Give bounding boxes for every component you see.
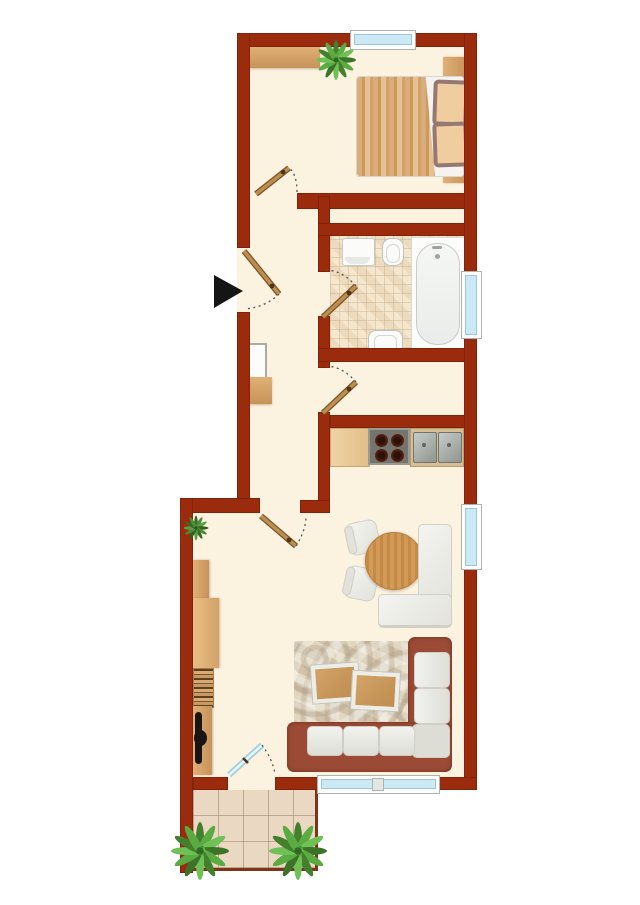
sofa-cushion: [343, 726, 379, 756]
window-mullion: [372, 778, 384, 791]
floor-plan: [0, 0, 640, 905]
bedroom-window: [350, 30, 416, 50]
double-bed: [356, 76, 464, 177]
right-wall-lower: [464, 566, 477, 790]
sink-faucet: [422, 443, 426, 447]
balcony-railing-bottom: [193, 868, 318, 871]
sofa-cushion: [379, 726, 415, 756]
sofa-corner-cushion: [412, 724, 450, 758]
right-wall-upper: [464, 33, 477, 273]
burner: [375, 434, 388, 447]
bathroom-window-glass: [465, 275, 477, 335]
left-wall-lower: [180, 498, 193, 873]
corner-sofa: [287, 637, 452, 772]
storage-floor: [330, 362, 464, 415]
bottom-wall-right-stub: [435, 777, 477, 790]
wall-cabinet: [193, 560, 209, 598]
storage-doorway-floor: [318, 368, 330, 412]
wall-cabinet: [193, 598, 219, 668]
bathroom-window: [461, 271, 482, 339]
left-wall-mid: [237, 312, 250, 502]
corner-bench: [378, 594, 452, 628]
sink-faucet: [447, 443, 451, 447]
entrance-gap-floor: [237, 248, 250, 312]
sofa-cushion: [307, 726, 343, 756]
sink-basin: [413, 432, 437, 463]
bathtub: [411, 237, 465, 350]
kitchen-sink-unit: [410, 428, 464, 467]
left-wall-upper: [237, 33, 250, 248]
sofa-cushion: [414, 688, 450, 724]
dining-table: [365, 532, 423, 590]
burner: [391, 434, 404, 447]
balcony-doorway-floor: [228, 777, 275, 790]
balcony-tile-floor: [193, 790, 318, 868]
burner: [391, 449, 404, 462]
kitchen-top-wall: [330, 415, 477, 428]
dining-window: [461, 504, 482, 570]
stove: [368, 428, 410, 465]
bottom-wall-mid-stub: [275, 777, 320, 790]
sink-basin: [438, 432, 462, 463]
bathtub-drain: [435, 254, 440, 259]
burner: [375, 449, 388, 462]
bath-doorway-floor: [318, 272, 330, 316]
washing-machine-lid: [345, 257, 370, 264]
right-wall-mid: [464, 335, 477, 506]
bed-duvet: [357, 77, 435, 176]
bedroom-window-glass: [354, 34, 412, 45]
toilet-bowl: [386, 244, 400, 263]
washing-machine: [342, 238, 375, 266]
bathroom-top-wall: [318, 223, 477, 236]
hall-bottom-stub: [300, 500, 330, 513]
wall-gap-sliver: [330, 209, 464, 223]
hall-kitchen-wall: [318, 412, 330, 513]
wardrobe: [250, 47, 320, 68]
tv-screen-bulge: [194, 730, 207, 746]
tv-stand: [193, 706, 212, 775]
toilet: [382, 238, 404, 266]
bathtub-faucet: [432, 246, 442, 249]
kitchen-counter: [330, 428, 370, 467]
bathroom-bottom-wall: [318, 348, 477, 362]
sofa-cushion: [414, 652, 450, 688]
bookshelf: [193, 668, 214, 708]
balcony-railing-right: [315, 790, 318, 871]
living-room-window: [317, 775, 440, 794]
dining-window-glass: [465, 508, 477, 566]
bottom-wall-left-stub: [193, 777, 228, 790]
